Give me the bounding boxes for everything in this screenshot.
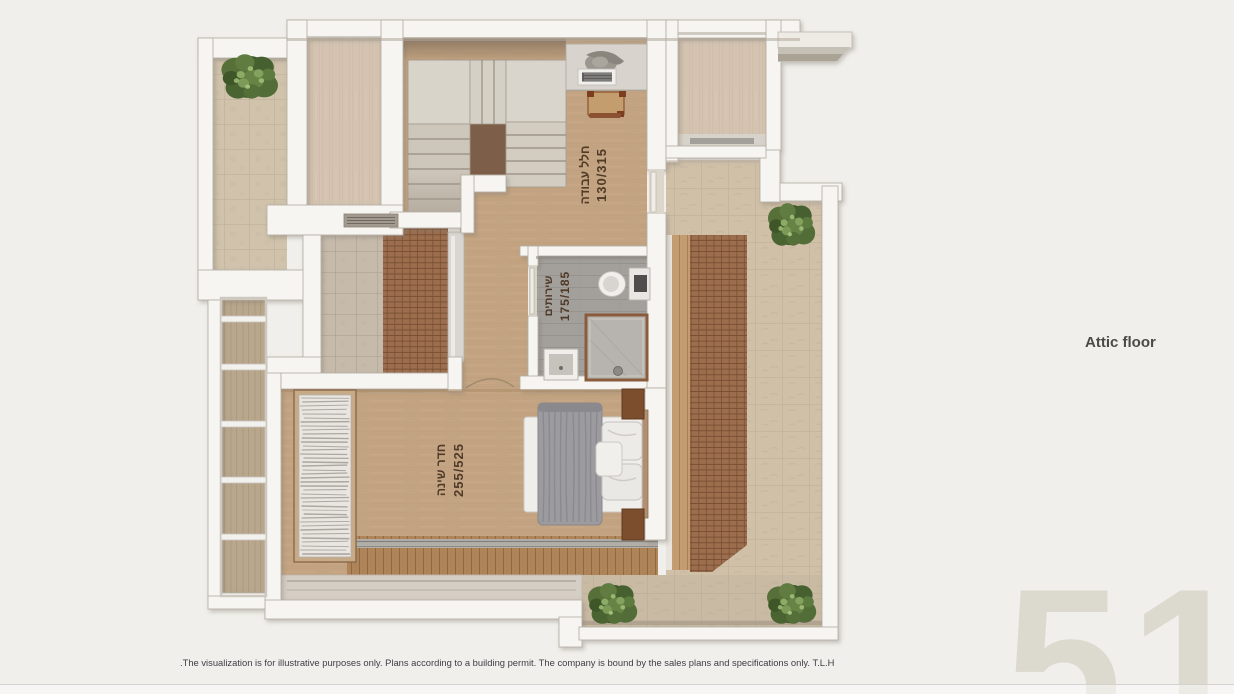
svg-text:חלל עבודה: חלל עבודה xyxy=(578,146,592,205)
svg-text:175/185: 175/185 xyxy=(558,271,572,321)
svg-text:255/525: 255/525 xyxy=(451,443,466,497)
svg-text:51: 51 xyxy=(1005,545,1234,694)
svg-text:חדר שינה: חדר שינה xyxy=(434,444,448,496)
svg-text:שירותים: שירותים xyxy=(543,275,555,316)
svg-text:130/315: 130/315 xyxy=(594,148,609,202)
